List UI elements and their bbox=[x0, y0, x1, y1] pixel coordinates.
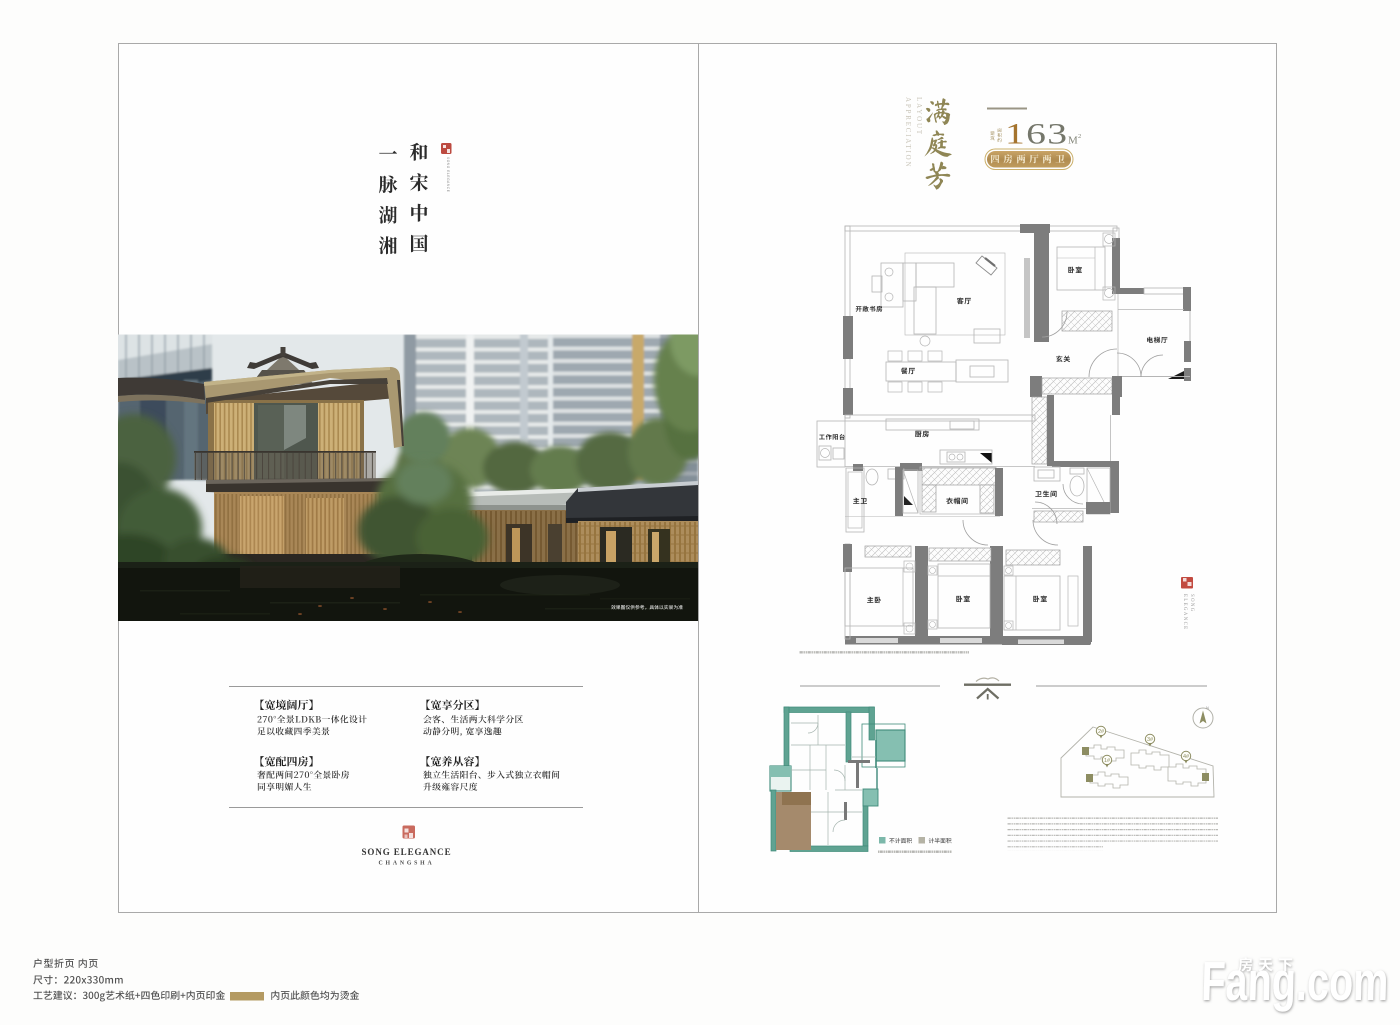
svg-text:N: N bbox=[1206, 705, 1209, 710]
svg-text:Fang.com: Fang.com bbox=[1201, 952, 1390, 1013]
svg-text:1#: 1# bbox=[1104, 758, 1111, 764]
svg-text:LAYOUT: LAYOUT bbox=[915, 97, 923, 136]
svg-text:SONG ELEGANCE: SONG ELEGANCE bbox=[362, 847, 452, 857]
svg-text:M: M bbox=[1068, 135, 1078, 147]
svg-text:2#: 2# bbox=[1098, 729, 1105, 735]
svg-text:3#: 3# bbox=[1147, 737, 1154, 743]
svg-text:2: 2 bbox=[1078, 133, 1081, 140]
svg-text:4#: 4# bbox=[1183, 754, 1190, 760]
svg-text:ELEGANCE: ELEGANCE bbox=[1182, 594, 1187, 631]
svg-text:APPRECIATION: APPRECIATION bbox=[904, 97, 912, 168]
svg-text:163: 163 bbox=[1005, 117, 1068, 150]
svg-text:SONG ELEGANCE: SONG ELEGANCE bbox=[446, 157, 450, 192]
svg-text:CHANGSHA: CHANGSHA bbox=[379, 861, 435, 867]
svg-text:SONG: SONG bbox=[1189, 594, 1194, 613]
